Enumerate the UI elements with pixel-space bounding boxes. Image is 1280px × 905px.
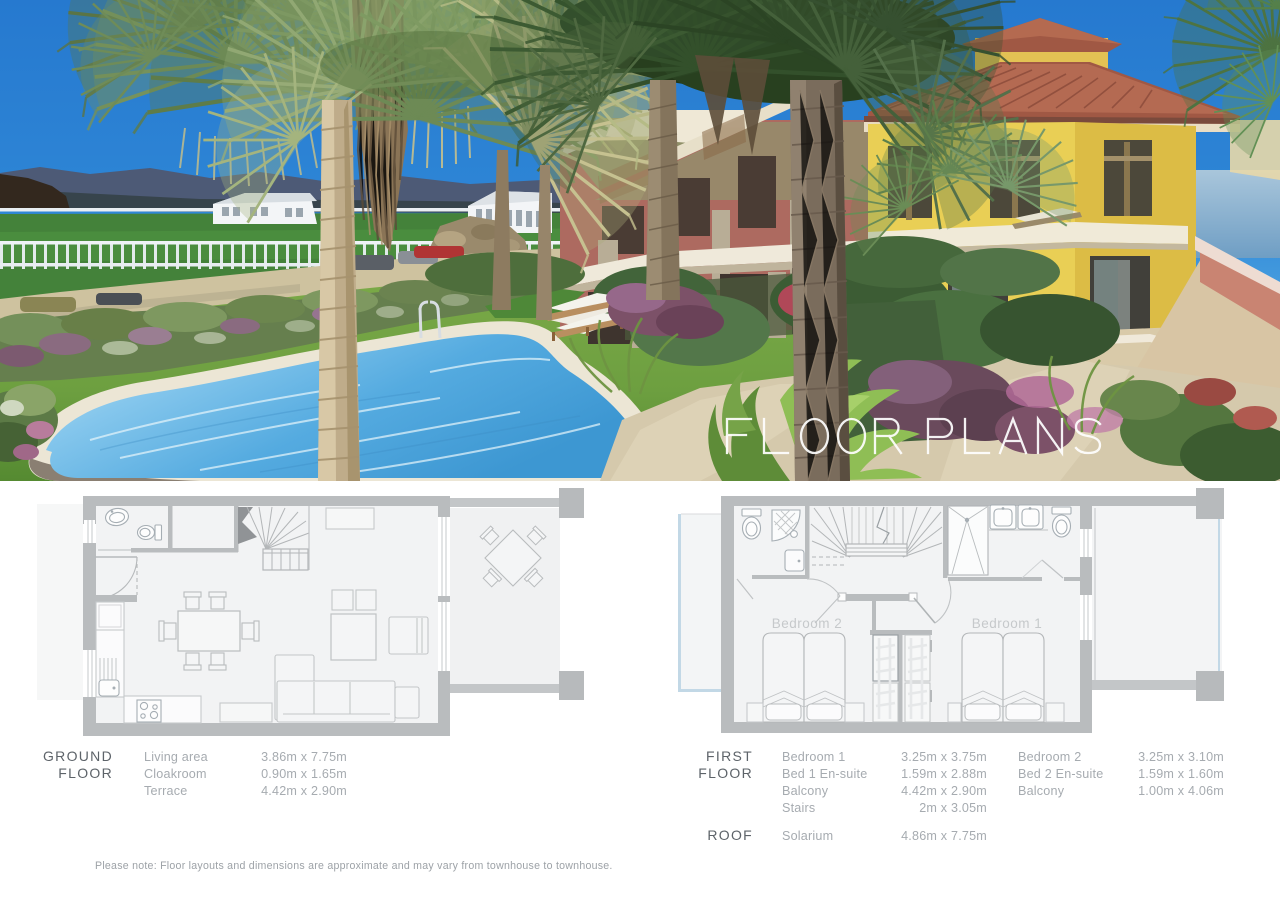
svg-text:Bedroom 1: Bedroom 1 xyxy=(972,616,1043,631)
svg-text:Bedroom 2: Bedroom 2 xyxy=(772,616,843,631)
